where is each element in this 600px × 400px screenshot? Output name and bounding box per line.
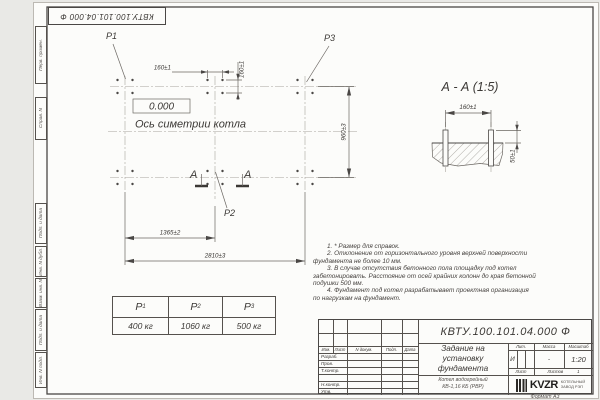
symmetry-axis-label: Ось симетрии котла (135, 119, 246, 131)
section-cut-letter-right: А (243, 169, 251, 181)
margin-box-sprav-n: Справ. N (35, 97, 47, 140)
anchor-bolt-left (443, 130, 448, 166)
tb-scale-value: 1:20 (564, 350, 593, 368)
margin-box-vzam-inv: Взам. инв. N (35, 278, 47, 308)
load-table-value-p1: 400 кг (113, 317, 168, 335)
tb-product-name: Котел водогрейный КВ-1,16 КБ (РВР) (418, 377, 508, 390)
kvzr-logo-text: KVZR (530, 379, 558, 391)
load-table-header-p3: P3 (222, 297, 275, 317)
tb-col-data: Дата (402, 346, 418, 353)
dim-text-section-160: 160±1 (459, 104, 476, 111)
tb-col-podp: Подп. (381, 346, 402, 353)
note-line: 4. Фундамент под котел разрабатывает про… (313, 287, 595, 294)
load-label-p2: P2 (224, 208, 235, 218)
dim-text-50: 50±1 (510, 149, 517, 163)
tb-row-utv: Утв. (321, 388, 347, 395)
load-table-value-p3: 500 кг (222, 317, 275, 335)
section-view: А - А (1:5) 160±1 50±1 (432, 80, 521, 172)
tb-col-izm: Изм. (319, 346, 333, 353)
note-line: забетонировать. Расстояние от осей крайн… (313, 273, 595, 280)
elevation-mark-value: 0.000 (149, 102, 174, 113)
tb-row-razrab: Разраб. (321, 353, 347, 360)
tb-scale-label: Масштаб (564, 343, 593, 350)
margin-box-perv-primen: Перв. примен. (35, 26, 47, 84)
tb-lit-label: Лит. (508, 343, 534, 350)
dim-text-2810: 2810±3 (204, 253, 226, 260)
kvzr-logo-caption: КОТЕЛЬНЫЙ ЗАВОД РЭП (561, 380, 585, 389)
dim-text-960: 960±3 (341, 123, 348, 141)
technical-notes: 1. * Размер для справок. 2. Отклонение о… (313, 243, 595, 302)
load-label-p3: P3 (324, 33, 335, 43)
margin-box-inv-dubl: Инв. N дубл. (35, 246, 47, 277)
dim-bolt-spacing-vertical: 160±1 (226, 61, 246, 100)
kvzr-logo-icon (516, 379, 527, 392)
anchor-bolt-right (489, 130, 494, 166)
dim-bolt-spacing-horizontal: 160±1 (154, 65, 234, 79)
section-title: А - А (1:5) (441, 80, 499, 94)
tb-lit-value: И (508, 350, 517, 368)
note-line: 2. Отклонение от горизонтального уровня … (313, 250, 595, 257)
top-stamp-box: КВТУ.100.101.04.000 Ф (48, 7, 166, 25)
tb-row-prov: Пров. (321, 360, 347, 367)
load-table-header-p2: P2 (168, 297, 222, 317)
top-stamp-number: КВТУ.100.101.04.000 Ф (60, 12, 154, 21)
tb-row-tkontr: Т.контр. (321, 367, 347, 374)
foundation-plan: 0.000 Ось симетрии котла P1 P3 P2 А А (106, 31, 358, 265)
load-table-value-p2: 1060 кг (168, 317, 222, 335)
margin-box-podp-data-2: Подп. и дата (35, 309, 47, 351)
tb-sheet-label: Лист (508, 368, 534, 375)
tb-col-dokum: N докум. (347, 346, 381, 353)
format-label: Формат А3 (495, 394, 595, 400)
load-table-header-p1: P1 (113, 297, 168, 317)
tb-row-nkontr: Н.контр. (321, 381, 347, 388)
tb-drawing-title: Задание на установку фундамента (418, 344, 508, 375)
tb-doc-number: КВТУ.100.101.04.000 Ф (418, 320, 593, 343)
column-axis-lines (110, 76, 356, 199)
margin-box-inv-podl: Инв. N подл. (35, 352, 47, 388)
note-line: 3. В случае отсутствия бетонного пола пл… (313, 265, 595, 272)
section-cut-letter-left: А (189, 169, 197, 181)
title-block: Изм. Лист N докум. Подп. Дата Разраб. Пр… (318, 319, 592, 394)
tb-mass-value: - (534, 350, 564, 368)
dim-section-spacing: 160±1 (446, 104, 492, 127)
dim-row-spacing: 960±3 (318, 87, 354, 178)
load-table: P1 P2 P3 400 кг 1060 кг 500 кг (112, 296, 276, 335)
margin-box-podp-data-1: Подп. и дата (35, 203, 47, 244)
drawing-sheet: 0.000 Ось симетрии котла P1 P3 P2 А А (0, 0, 600, 400)
dim-mid-column: 1365±2 (125, 192, 215, 265)
tb-col-list: Лист (333, 346, 347, 353)
tb-mass-label: Масса (534, 343, 564, 350)
dim-text-160v: 160±1 (239, 61, 246, 78)
note-line: по нагрузкам на фундамент. (313, 295, 595, 302)
dim-text-160h: 160±1 (154, 65, 171, 72)
tb-sheets: Листов 1 (534, 368, 593, 375)
dim-text-1365: 1365±2 (160, 230, 181, 237)
load-label-p1: P1 (106, 31, 117, 41)
tb-logo-area: KVZR КОТЕЛЬНЫЙ ЗАВОД РЭП (508, 375, 593, 395)
